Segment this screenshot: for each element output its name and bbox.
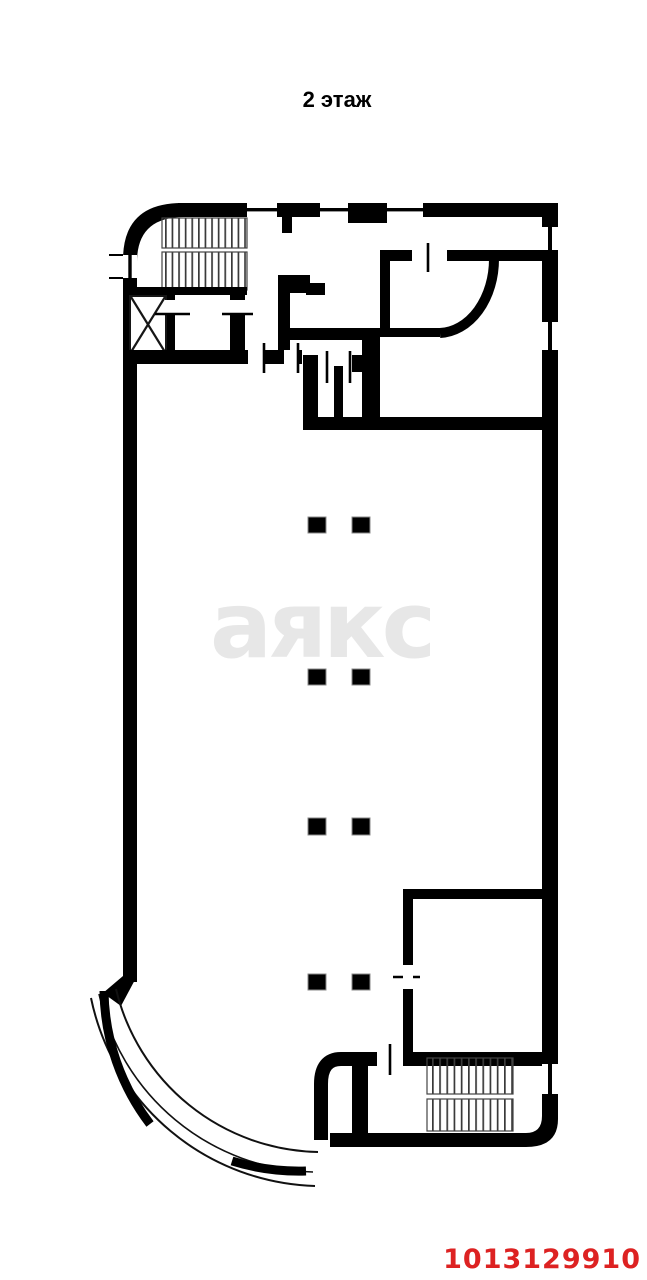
window-top-3	[387, 203, 423, 217]
window-right-3	[542, 1064, 558, 1094]
wall-top	[178, 203, 558, 217]
window-top-2	[320, 203, 348, 217]
window-left-1	[109, 254, 137, 279]
column	[352, 517, 370, 533]
hall-columns	[308, 517, 370, 990]
wall-curved-room-west	[380, 250, 390, 337]
stair-flight	[162, 252, 247, 290]
floor-plan-page: 2 этаж аякс	[0, 0, 647, 1280]
column	[352, 974, 370, 990]
terrace-arc-inner	[116, 989, 318, 1152]
wall-stairhall-curve	[321, 1059, 355, 1140]
wall-wc-right	[362, 328, 380, 427]
wall-stub	[282, 217, 292, 233]
stair-flight	[427, 1099, 513, 1131]
window-right-2	[542, 322, 558, 350]
terrace-arc-middle	[99, 994, 313, 1172]
wall-room-br-north	[403, 889, 542, 899]
wall-horizontal-lobby	[123, 350, 302, 364]
terrace-glass-arc	[91, 989, 318, 1186]
staircase-bottom-right	[321, 1052, 542, 1140]
wc-stalls	[290, 328, 380, 427]
room-bottom-right	[403, 889, 542, 1066]
floor-plan-drawing	[0, 0, 647, 1280]
column	[352, 669, 370, 685]
wall-curved-room-north	[380, 250, 542, 261]
curved-room	[380, 250, 542, 337]
window-top-1	[247, 203, 277, 217]
window-right-1	[542, 227, 558, 250]
door-marks	[155, 243, 428, 1075]
column	[308, 517, 326, 533]
column	[308, 669, 326, 685]
listing-id: 1013129910	[443, 1244, 641, 1275]
wall-vestibule	[352, 1052, 368, 1133]
column	[308, 974, 326, 990]
column	[308, 818, 326, 835]
column	[352, 818, 370, 835]
interior-walls-top	[123, 217, 542, 430]
wall-wc-divider	[334, 366, 343, 424]
terrace-wall-thick-lower	[232, 1161, 306, 1171]
staircase-top-left	[152, 218, 247, 295]
wall-left	[123, 260, 137, 982]
wall-curved-room-south	[380, 328, 440, 337]
wall-curved-arc	[440, 259, 494, 333]
stair-flight	[162, 218, 247, 248]
wall-wc-left	[303, 355, 318, 424]
stair-flight	[427, 1058, 513, 1094]
